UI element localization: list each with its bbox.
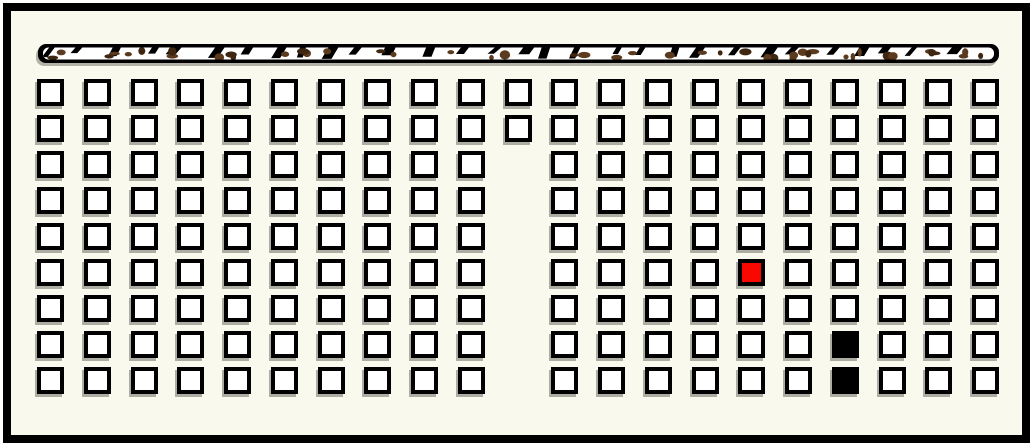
grid-cell[interactable]: [224, 259, 251, 286]
grid-cell[interactable]: [177, 331, 204, 358]
grid-cell[interactable]: [458, 223, 485, 250]
grid-cell[interactable]: [177, 151, 204, 178]
grid-cell[interactable]: [37, 187, 64, 214]
grid-cell[interactable]: [738, 367, 765, 394]
grid-cell[interactable]: [879, 259, 906, 286]
grid-cell[interactable]: [551, 295, 578, 322]
grid-cell[interactable]: [925, 331, 952, 358]
grid-cell[interactable]: [224, 79, 251, 106]
grid-cell[interactable]: [131, 295, 158, 322]
grid-cell[interactable]: [458, 187, 485, 214]
grid-cell[interactable]: [598, 79, 625, 106]
grid-cell[interactable]: [131, 223, 158, 250]
grid-cell[interactable]: [364, 151, 391, 178]
grid-cell[interactable]: [598, 259, 625, 286]
grid-cell[interactable]: [364, 295, 391, 322]
grid-cell[interactable]: [972, 259, 999, 286]
grid-cell[interactable]: [785, 79, 812, 106]
grid-cell[interactable]: [131, 115, 158, 142]
grid-cell[interactable]: [972, 151, 999, 178]
grid-cell[interactable]: [645, 367, 672, 394]
grid-cell[interactable]: [738, 223, 765, 250]
grid-cell[interactable]: [458, 259, 485, 286]
grid-cell[interactable]: [598, 367, 625, 394]
grid-cell[interactable]: [832, 115, 859, 142]
grid-cell[interactable]: [411, 151, 438, 178]
grid-cell[interactable]: [692, 187, 719, 214]
grid-cell[interactable]: [318, 259, 345, 286]
grid-cell[interactable]: [84, 151, 111, 178]
grid-cell[interactable]: [131, 259, 158, 286]
grid-cell[interactable]: [458, 115, 485, 142]
grid-cell[interactable]: [972, 367, 999, 394]
grid-cell[interactable]: [318, 151, 345, 178]
grid-cell[interactable]: [925, 223, 952, 250]
grid-cell[interactable]: [364, 367, 391, 394]
grid-cell[interactable]: [645, 79, 672, 106]
grid-cell[interactable]: [692, 79, 719, 106]
grid-cell[interactable]: [551, 331, 578, 358]
grid-cell[interactable]: [645, 223, 672, 250]
grid-cell[interactable]: [645, 187, 672, 214]
grid-cell[interactable]: [318, 367, 345, 394]
grid-cell[interactable]: [879, 295, 906, 322]
grid-cell[interactable]: [879, 367, 906, 394]
grid-cell[interactable]: [598, 331, 625, 358]
grid-cell[interactable]: [318, 187, 345, 214]
grid-cell[interactable]: [37, 367, 64, 394]
grid-cell[interactable]: [692, 151, 719, 178]
grid-cell[interactable]: [598, 187, 625, 214]
grid-cell[interactable]: [598, 115, 625, 142]
grid-cell[interactable]: [832, 259, 859, 286]
grid-cell[interactable]: [505, 79, 532, 106]
grid-cell[interactable]: [972, 187, 999, 214]
board: [0, 0, 1033, 446]
grid-cell[interactable]: [785, 259, 812, 286]
grid-cell[interactable]: [177, 259, 204, 286]
grid-cell[interactable]: [832, 223, 859, 250]
grid-cell[interactable]: [411, 187, 438, 214]
grid-cell[interactable]: [271, 331, 298, 358]
grid-cell[interactable]: [832, 295, 859, 322]
grid-cell[interactable]: [645, 295, 672, 322]
grid-cell[interactable]: [37, 115, 64, 142]
grid-cell[interactable]: [84, 331, 111, 358]
grid-cell[interactable]: [458, 331, 485, 358]
grid-cell[interactable]: [318, 295, 345, 322]
grid-cell[interactable]: [411, 331, 438, 358]
grid-cell[interactable]: [364, 187, 391, 214]
grid-cell[interactable]: [925, 295, 952, 322]
grid-cell[interactable]: [271, 295, 298, 322]
grid-cell[interactable]: [972, 223, 999, 250]
grid-cell[interactable]: [925, 259, 952, 286]
grid-cell[interactable]: [551, 367, 578, 394]
grid-cell[interactable]: [785, 331, 812, 358]
grid-cell[interactable]: [411, 259, 438, 286]
grid-cell[interactable]: [364, 331, 391, 358]
speckled-bar-graphic: [38, 44, 999, 63]
grid-cell[interactable]: [177, 367, 204, 394]
grid-cell[interactable]: [84, 367, 111, 394]
grid-cell[interactable]: [84, 223, 111, 250]
grid-cell[interactable]: [598, 295, 625, 322]
grid-cell[interactable]: [738, 295, 765, 322]
grid-cell[interactable]: [37, 151, 64, 178]
grid-cell-red[interactable]: [738, 259, 765, 286]
grid-cell[interactable]: [364, 79, 391, 106]
grid-cell[interactable]: [458, 151, 485, 178]
grid-cell[interactable]: [879, 115, 906, 142]
grid-cell[interactable]: [271, 223, 298, 250]
grid-cell[interactable]: [738, 115, 765, 142]
grid-cell[interactable]: [692, 223, 719, 250]
grid-cell[interactable]: [598, 223, 625, 250]
grid-cell[interactable]: [645, 331, 672, 358]
grid-cell[interactable]: [879, 187, 906, 214]
grid-cell[interactable]: [879, 79, 906, 106]
grid-cell[interactable]: [645, 115, 672, 142]
grid-cell[interactable]: [972, 295, 999, 322]
grid-cell[interactable]: [645, 259, 672, 286]
grid-cell[interactable]: [832, 187, 859, 214]
grid-cell[interactable]: [925, 115, 952, 142]
grid-cell[interactable]: [925, 151, 952, 178]
grid-cell[interactable]: [271, 367, 298, 394]
grid-cell[interactable]: [318, 331, 345, 358]
grid-cell[interactable]: [271, 115, 298, 142]
grid-cell[interactable]: [364, 223, 391, 250]
grid-cell[interactable]: [131, 331, 158, 358]
grid-cell[interactable]: [972, 115, 999, 142]
grid-cell[interactable]: [224, 331, 251, 358]
grid-cell[interactable]: [925, 367, 952, 394]
grid-cell[interactable]: [131, 79, 158, 106]
grid-cell[interactable]: [458, 295, 485, 322]
grid-cell[interactable]: [505, 115, 532, 142]
grid-cell[interactable]: [131, 187, 158, 214]
grid-cell[interactable]: [131, 151, 158, 178]
grid-cell[interactable]: [411, 295, 438, 322]
grid-cell[interactable]: [785, 295, 812, 322]
grid-cell[interactable]: [84, 79, 111, 106]
grid-cell[interactable]: [177, 187, 204, 214]
grid-cell[interactable]: [411, 367, 438, 394]
grid-cell[interactable]: [692, 331, 719, 358]
grid-cell[interactable]: [785, 223, 812, 250]
grid-cell[interactable]: [224, 223, 251, 250]
grid-cell[interactable]: [224, 367, 251, 394]
grid-cell[interactable]: [925, 79, 952, 106]
grid-cell[interactable]: [879, 151, 906, 178]
grid-cell[interactable]: [271, 259, 298, 286]
grid-cell[interactable]: [84, 187, 111, 214]
grid-cell[interactable]: [738, 187, 765, 214]
grid-cell[interactable]: [879, 223, 906, 250]
grid-cell[interactable]: [972, 79, 999, 106]
grid-cell[interactable]: [785, 187, 812, 214]
grid-cell[interactable]: [37, 259, 64, 286]
grid-cell[interactable]: [785, 367, 812, 394]
grid-cell[interactable]: [224, 295, 251, 322]
grid-cell[interactable]: [972, 331, 999, 358]
grid-cell[interactable]: [271, 187, 298, 214]
grid-cell[interactable]: [738, 331, 765, 358]
grid-cell[interactable]: [224, 151, 251, 178]
grid-cell[interactable]: [692, 259, 719, 286]
grid-cell[interactable]: [84, 295, 111, 322]
grid-cell[interactable]: [551, 223, 578, 250]
grid-cell[interactable]: [131, 367, 158, 394]
grid-cell-black[interactable]: [832, 367, 859, 394]
grid-cell[interactable]: [364, 259, 391, 286]
grid-cell[interactable]: [177, 115, 204, 142]
grid-cell[interactable]: [224, 187, 251, 214]
grid-cell[interactable]: [318, 79, 345, 106]
grid-cell[interactable]: [84, 115, 111, 142]
grid-cell[interactable]: [318, 223, 345, 250]
grid-cell[interactable]: [551, 115, 578, 142]
grid-cell[interactable]: [177, 295, 204, 322]
grid-cell[interactable]: [551, 187, 578, 214]
grid-cell[interactable]: [37, 295, 64, 322]
grid-cell[interactable]: [925, 187, 952, 214]
grid-cell[interactable]: [879, 331, 906, 358]
grid-cell-black[interactable]: [832, 331, 859, 358]
grid-cell[interactable]: [177, 79, 204, 106]
grid-cell[interactable]: [738, 151, 765, 178]
grid-cell[interactable]: [411, 115, 438, 142]
grid-cell[interactable]: [832, 151, 859, 178]
grid-cell[interactable]: [271, 151, 298, 178]
grid-cell[interactable]: [84, 259, 111, 286]
grid-cell[interactable]: [271, 79, 298, 106]
grid-cell[interactable]: [551, 79, 578, 106]
grid-cell[interactable]: [551, 259, 578, 286]
grid-cell[interactable]: [832, 79, 859, 106]
grid-cell[interactable]: [598, 151, 625, 178]
speckled-bar: [38, 44, 999, 63]
grid-cell[interactable]: [318, 115, 345, 142]
grid-cell[interactable]: [692, 295, 719, 322]
grid-cell[interactable]: [551, 151, 578, 178]
grid-cell[interactable]: [37, 223, 64, 250]
grid-cell[interactable]: [37, 79, 64, 106]
grid-cell[interactable]: [364, 115, 391, 142]
grid-cell[interactable]: [692, 367, 719, 394]
grid-cell[interactable]: [411, 79, 438, 106]
grid-cell[interactable]: [177, 223, 204, 250]
grid-cell[interactable]: [458, 79, 485, 106]
grid-cell[interactable]: [411, 223, 438, 250]
grid-cell[interactable]: [738, 79, 765, 106]
grid-cell[interactable]: [785, 151, 812, 178]
grid-cell[interactable]: [224, 115, 251, 142]
grid-cell[interactable]: [785, 115, 812, 142]
grid-cell[interactable]: [645, 151, 672, 178]
grid-cell[interactable]: [692, 115, 719, 142]
grid-cell[interactable]: [37, 331, 64, 358]
grid-cell[interactable]: [458, 367, 485, 394]
